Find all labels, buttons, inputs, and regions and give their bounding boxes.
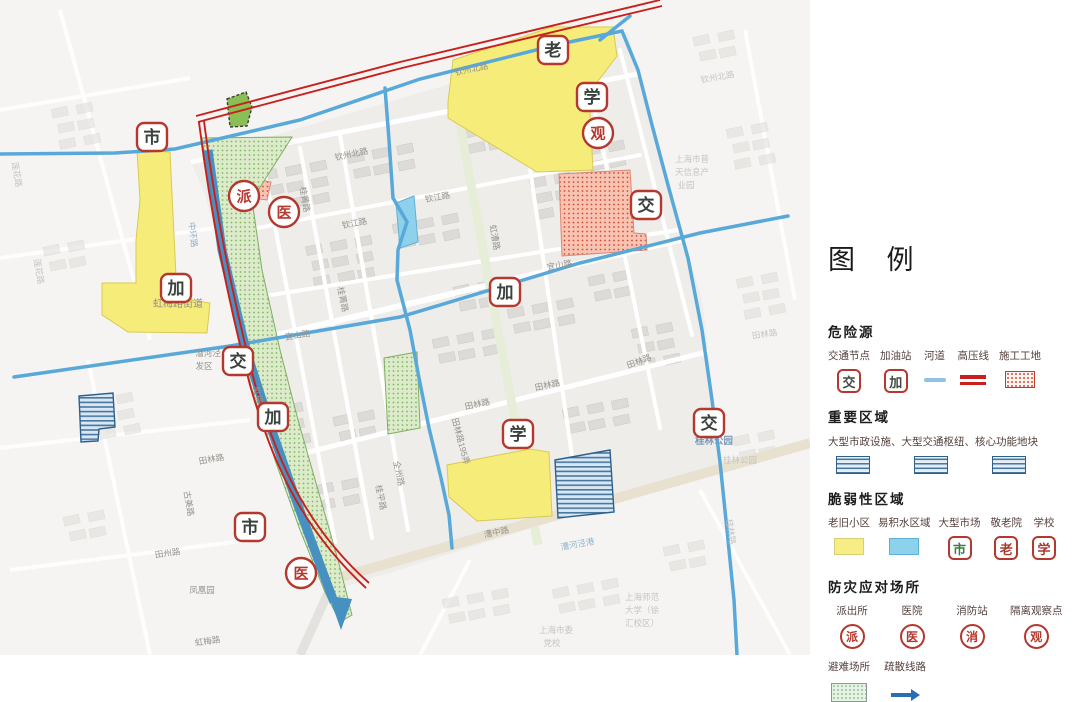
legend-item-construction: 施工工地 bbox=[999, 348, 1041, 388]
svg-text:医: 医 bbox=[293, 566, 308, 583]
road-label: 上海市普 bbox=[675, 154, 710, 164]
map-marker-交: 交 bbox=[694, 409, 724, 437]
map-marker-市: 市 bbox=[137, 123, 167, 151]
svg-text:学: 学 bbox=[584, 87, 601, 107]
legend-item-hospital: 医院 医 bbox=[890, 603, 934, 649]
shelter-block bbox=[384, 352, 420, 434]
map-marker-加: 加 bbox=[161, 274, 191, 302]
legend-section-hazard: 危险源 交通节点 交 加油站 加 河道 高压线 施工工地 bbox=[828, 321, 1074, 393]
important-zone-south bbox=[555, 450, 614, 518]
map-marker-加: 加 bbox=[490, 278, 520, 306]
road-label: 漕河泾 bbox=[195, 348, 221, 358]
hazard-heading: 危险源 bbox=[828, 321, 1074, 341]
map-marker-加: 加 bbox=[258, 403, 288, 431]
road-label: 凤凰园 bbox=[189, 585, 215, 595]
legend-item-police: 派出所 派 bbox=[828, 603, 876, 649]
legend-title: 图 例 bbox=[828, 238, 1074, 277]
hospital-icon: 医 bbox=[900, 624, 925, 649]
map-marker-医: 医 bbox=[269, 197, 299, 227]
important-desc: 大型市政设施、大型交通枢纽、核心功能地块 bbox=[828, 434, 1074, 449]
svg-text:市: 市 bbox=[144, 127, 161, 147]
important-heading: 重要区域 bbox=[828, 406, 1074, 426]
legend-item-traffic-node: 交通节点 交 bbox=[828, 348, 870, 393]
map-marker-市: 市 bbox=[235, 513, 265, 541]
legend-item-fire-station: 消防站 消 bbox=[948, 603, 996, 649]
core-function-swatch bbox=[992, 456, 1026, 474]
svg-text:交: 交 bbox=[638, 195, 655, 215]
map-marker-学: 学 bbox=[577, 83, 607, 111]
road-label: 大学（徐 bbox=[625, 605, 660, 615]
svg-text:加: 加 bbox=[264, 408, 282, 427]
isolation-point-icon: 观 bbox=[1024, 624, 1049, 649]
svg-text:交: 交 bbox=[701, 413, 718, 433]
map-marker-学: 学 bbox=[503, 420, 533, 448]
road-label: 上海师范 bbox=[625, 592, 660, 602]
map-marker-交: 交 bbox=[223, 347, 253, 375]
response-heading: 防灾应对场所 bbox=[828, 576, 1074, 596]
old-residential-swatch bbox=[834, 538, 864, 555]
legend-panel: 图 例 危险源 交通节点 交 加油站 加 河道 高压线 施工工地 bbox=[822, 0, 1074, 655]
shelter-swatch bbox=[831, 683, 867, 702]
construction-swatch-icon bbox=[1005, 371, 1035, 388]
map-marker-派: 派 bbox=[229, 181, 259, 211]
road-label: 党校 bbox=[543, 638, 561, 648]
svg-text:市: 市 bbox=[242, 517, 259, 537]
svg-text:派: 派 bbox=[236, 189, 252, 206]
vulnerable-heading: 脆弱性区域 bbox=[828, 488, 1074, 508]
svg-text:学: 学 bbox=[510, 424, 527, 444]
legend-item-river: 河道 bbox=[924, 348, 946, 382]
svg-text:观: 观 bbox=[590, 126, 605, 143]
legend-section-response: 防灾应对场所 派出所 派 医院 医 消防站 消 隔离观察点 观 避难场所 bbox=[828, 576, 1074, 702]
road-label: 天信息产 bbox=[675, 167, 709, 177]
road-label: 桂林公园 bbox=[723, 455, 757, 465]
market-icon: 市 bbox=[948, 536, 972, 560]
municipal-facility-swatch bbox=[836, 456, 870, 474]
nursing-home-icon: 老 bbox=[994, 536, 1018, 560]
road-label: 业园 bbox=[677, 180, 694, 190]
road-label: 汇校区） bbox=[625, 618, 659, 628]
school-icon: 学 bbox=[1032, 536, 1056, 560]
map-marker-医: 医 bbox=[286, 558, 316, 588]
svg-text:加: 加 bbox=[167, 279, 185, 298]
legend-section-important: 重要区域 大型市政设施、大型交通枢纽、核心功能地块 bbox=[828, 406, 1074, 474]
legend-section-vulnerable: 脆弱性区域 老旧小区 易积水区域 大型市场 市 敬老院 老 学校 学 bbox=[828, 488, 1074, 560]
legend-item-shelter: 避难场所 bbox=[828, 659, 870, 702]
gas-station-icon: 加 bbox=[884, 369, 908, 393]
svg-text:医: 医 bbox=[276, 205, 291, 222]
high-voltage-icon bbox=[960, 375, 986, 388]
svg-text:老: 老 bbox=[544, 40, 562, 60]
svg-text:交: 交 bbox=[230, 351, 247, 371]
map-marker-交: 交 bbox=[631, 191, 661, 219]
page: { "legend": { "title": "图 例", "sections"… bbox=[0, 0, 1080, 655]
legend-item-flood-area: 易积水区域 bbox=[878, 515, 931, 555]
map-marker-老: 老 bbox=[538, 36, 568, 64]
legend-item-evacuation: 疏散线路 bbox=[884, 659, 926, 701]
flood-area-swatch bbox=[889, 538, 919, 555]
road-label: 上海市委 bbox=[539, 625, 574, 635]
river-line-icon bbox=[924, 378, 946, 382]
evacuation-arrow-icon bbox=[891, 689, 920, 701]
legend-item-old-residential: 老旧小区 bbox=[828, 515, 870, 555]
legend-item-school: 学校 学 bbox=[1032, 515, 1056, 560]
traffic-node-icon: 交 bbox=[837, 369, 861, 393]
planning-map: 钦州北路钦州北路钦州北路钦江路钦江路桂菁路桂菁路宜山路宜山路田林路田林路田林路田… bbox=[0, 0, 810, 655]
map-marker-观: 观 bbox=[583, 118, 613, 148]
legend-item-market: 大型市场 市 bbox=[939, 515, 981, 560]
road-label: 发区 bbox=[195, 361, 213, 371]
svg-text:加: 加 bbox=[496, 283, 514, 302]
transport-hub-swatch bbox=[914, 456, 948, 474]
legend-item-gas-station: 加油站 加 bbox=[880, 348, 912, 393]
police-icon: 派 bbox=[840, 624, 865, 649]
map-canvas: 钦州北路钦州北路钦州北路钦江路钦江路桂菁路桂菁路宜山路宜山路田林路田林路田林路田… bbox=[0, 0, 810, 655]
legend-item-isolation: 隔离观察点 观 bbox=[1010, 603, 1063, 649]
fire-station-icon: 消 bbox=[960, 624, 985, 649]
legend-item-nursing-home: 敬老院 老 bbox=[991, 515, 1023, 560]
legend-item-high-voltage: 高压线 bbox=[958, 348, 990, 388]
